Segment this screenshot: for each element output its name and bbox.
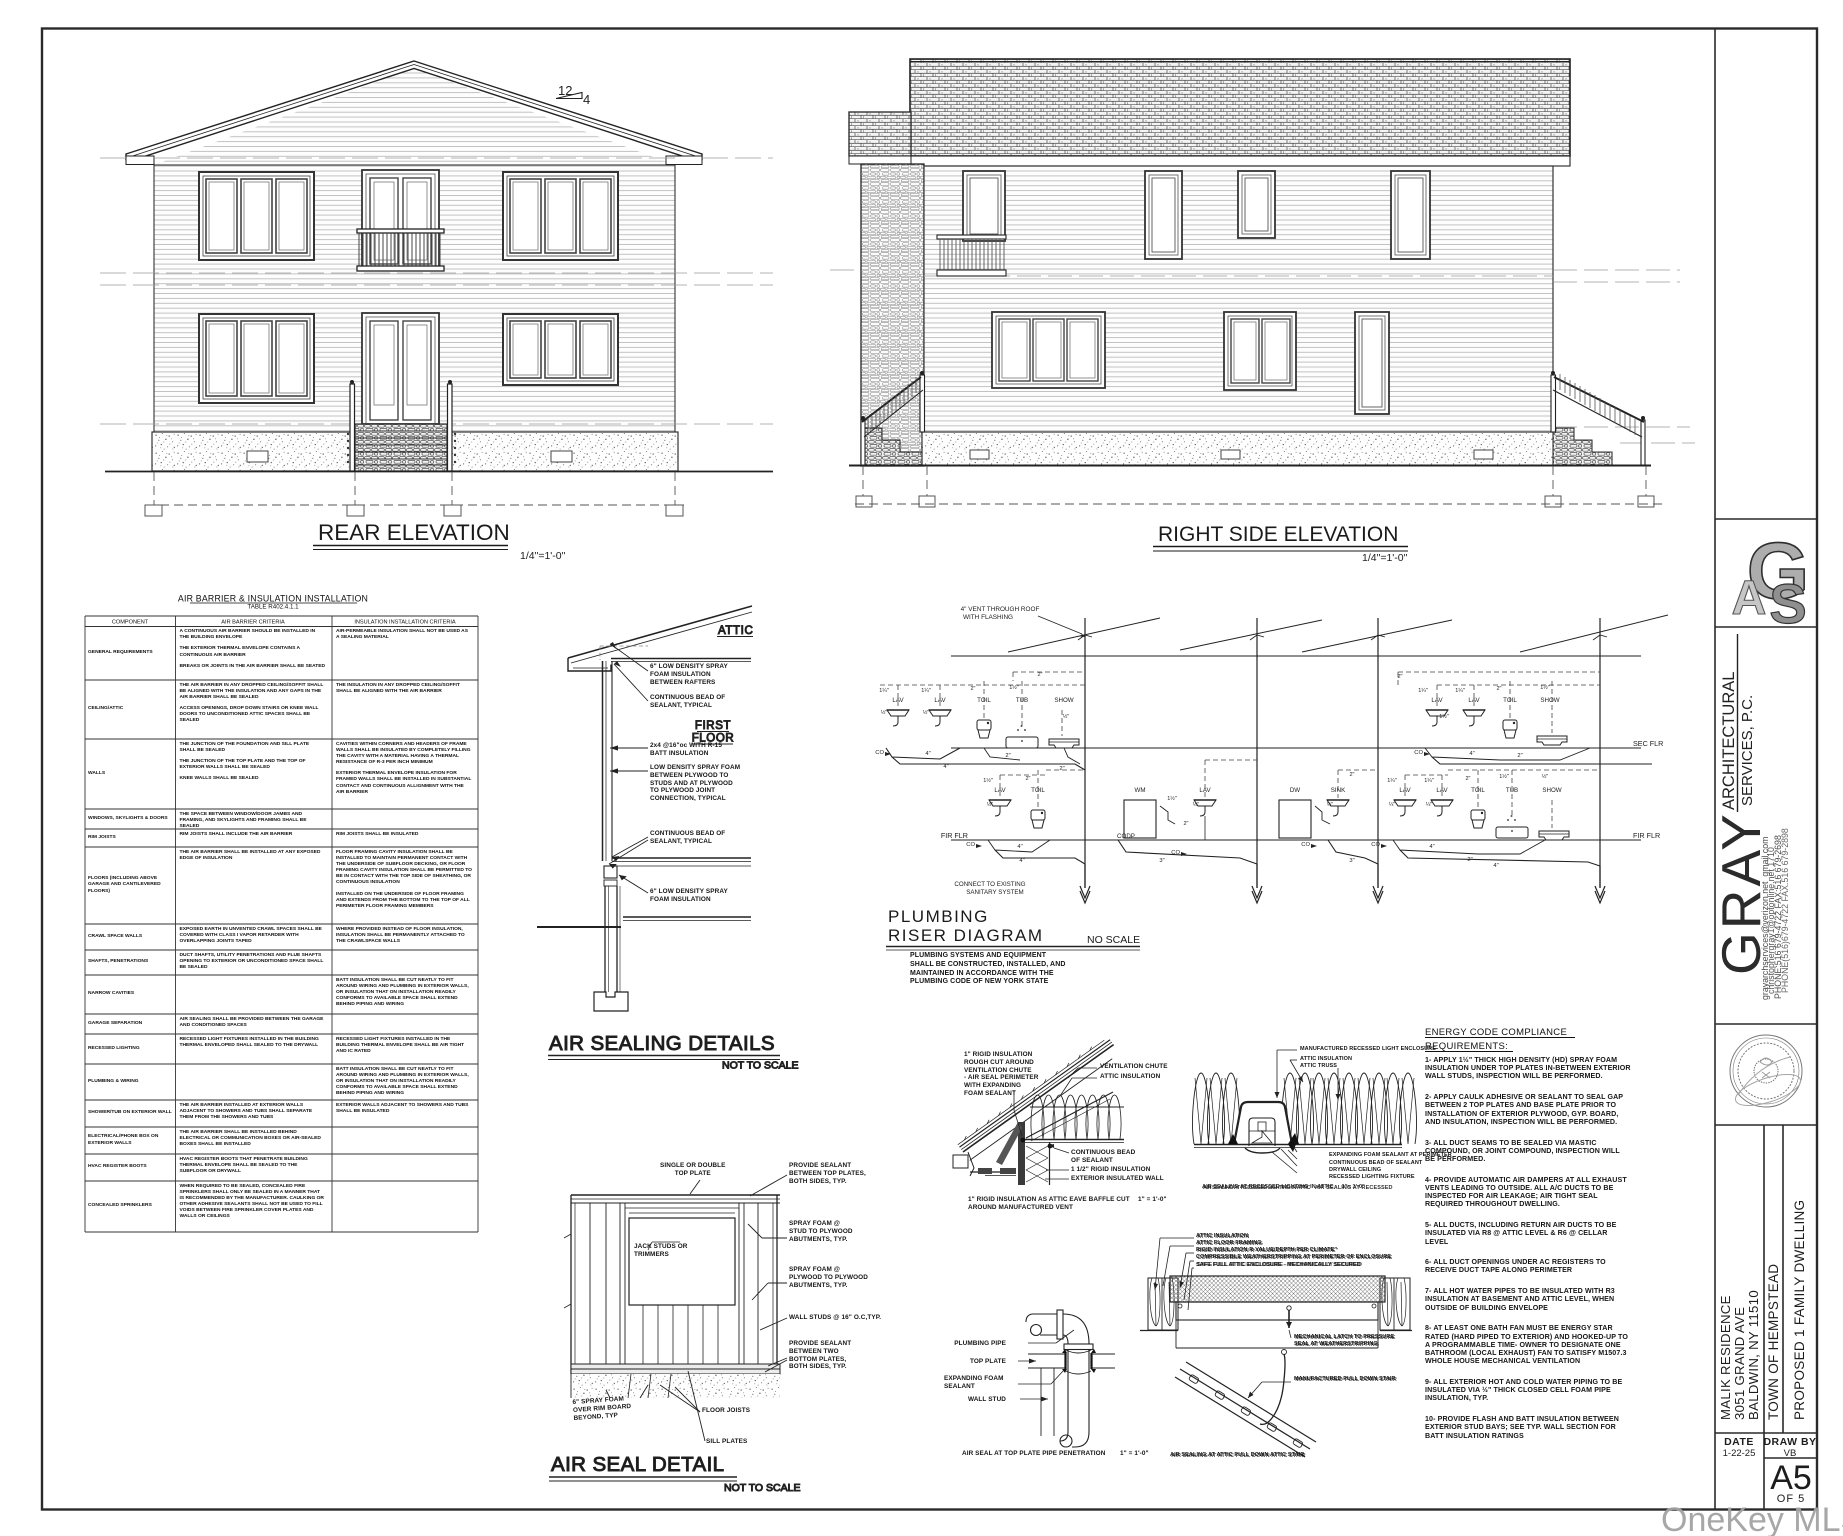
svg-text:4: 4 bbox=[583, 92, 590, 107]
svg-text:TABLE R402.4.1.1: TABLE R402.4.1.1 bbox=[247, 604, 299, 611]
svg-text:4": 4" bbox=[1429, 844, 1434, 850]
svg-text:REQUIREMENTS:: REQUIREMENTS: bbox=[1425, 1041, 1508, 1052]
svg-text:DW: DW bbox=[1290, 787, 1300, 794]
svg-text:LAV: LAV bbox=[1431, 697, 1443, 704]
svg-text:4": 4" bbox=[925, 751, 930, 757]
svg-text:1¼": 1¼" bbox=[1387, 778, 1397, 784]
svg-text:CO: CO bbox=[1414, 750, 1423, 756]
svg-text:LAV: LAV bbox=[1436, 787, 1448, 794]
svg-text:PROPOSED 1 FAMILY DWELLING: PROPOSED 1 FAMILY DWELLING bbox=[1792, 1200, 1807, 1420]
svg-text:LAV: LAV bbox=[1468, 697, 1480, 704]
svg-text:SHOW: SHOW bbox=[1542, 787, 1561, 794]
svg-text:CO: CO bbox=[966, 842, 975, 848]
svg-text:2": 2" bbox=[1025, 776, 1030, 782]
svg-text:DRAW BY: DRAW BY bbox=[1763, 1436, 1816, 1448]
svg-text:FIR FLR: FIR FLR bbox=[941, 831, 968, 840]
svg-text:FIRST: FIRST bbox=[695, 720, 731, 732]
svg-text:1¼": 1¼" bbox=[1455, 688, 1465, 694]
svg-text:2": 2" bbox=[1183, 821, 1188, 827]
svg-text:AIR SEAL DETAIL: AIR SEAL DETAIL bbox=[551, 1453, 724, 1476]
svg-text:½": ½" bbox=[1327, 801, 1334, 808]
svg-text:3": 3" bbox=[1159, 858, 1164, 864]
svg-text:1/4"=1'-0": 1/4"=1'-0" bbox=[1362, 552, 1408, 564]
svg-text:1¼": 1¼" bbox=[1424, 778, 1434, 784]
svg-text:ENERGY CODE COMPLIANCE: ENERGY CODE COMPLIANCE bbox=[1425, 1027, 1567, 1038]
svg-text:4": 4" bbox=[1493, 863, 1498, 869]
svg-text:ARCHITECTURAL: ARCHITECTURAL bbox=[1720, 672, 1738, 810]
svg-text:BALDWIN, NY 11510: BALDWIN, NY 11510 bbox=[1746, 1290, 1761, 1420]
svg-text:4": 4" bbox=[943, 764, 948, 770]
svg-text:LAV: LAV bbox=[1399, 787, 1411, 794]
svg-text:2": 2" bbox=[1005, 753, 1010, 759]
svg-text:DATE: DATE bbox=[1724, 1436, 1754, 1448]
svg-text:CONNECT TO EXISTING: CONNECT TO EXISTING bbox=[954, 881, 1025, 888]
svg-text:4": 4" bbox=[1469, 751, 1474, 757]
svg-text:REAR ELEVATION: REAR ELEVATION bbox=[318, 520, 510, 545]
svg-text:WITH FLASHING: WITH FLASHING bbox=[963, 614, 1013, 621]
svg-text:AIR BARRIER & INSULATION INSTA: AIR BARRIER & INSULATION INSTALLATION bbox=[178, 594, 368, 604]
svg-text:LAV: LAV bbox=[994, 787, 1006, 794]
svg-text:LAV: LAV bbox=[892, 697, 904, 704]
svg-text:SEC FLR: SEC FLR bbox=[1633, 739, 1663, 748]
svg-text:1½": 1½" bbox=[1167, 795, 1177, 802]
svg-text:ATTIC: ATTIC bbox=[718, 625, 753, 637]
svg-text:VB: VB bbox=[1784, 1448, 1797, 1459]
svg-text:4": 4" bbox=[1019, 858, 1024, 864]
svg-text:A: A bbox=[1732, 572, 1767, 625]
svg-text:A5: A5 bbox=[1770, 1459, 1812, 1497]
svg-text:PHONE(516)679-4722 FAX.516 679: PHONE(516)679-4722 FAX.516 679-2898 bbox=[1780, 828, 1790, 993]
svg-text:NOT TO SCALE: NOT TO SCALE bbox=[722, 1060, 798, 1072]
svg-text:2": 2" bbox=[1517, 753, 1522, 759]
svg-text:2": 2" bbox=[1349, 772, 1354, 778]
svg-text:1½": 1½" bbox=[1540, 684, 1550, 691]
svg-text:CODP: CODP bbox=[1117, 833, 1135, 840]
svg-text:½": ½" bbox=[923, 709, 930, 716]
svg-text:MALIK RESIDENCE: MALIK RESIDENCE bbox=[1718, 1295, 1733, 1420]
svg-text:½": ½" bbox=[987, 801, 994, 808]
svg-text:NO SCALE: NO SCALE bbox=[1087, 934, 1140, 946]
svg-text:CO: CO bbox=[1171, 850, 1180, 856]
svg-text:1¼": 1¼" bbox=[1418, 688, 1428, 694]
svg-text:1¼": 1¼" bbox=[921, 688, 931, 694]
svg-text:INSULATION INSTALLATION CRITER: INSULATION INSTALLATION CRITERIA bbox=[354, 620, 456, 626]
svg-text:COMPONENT: COMPONENT bbox=[112, 620, 149, 626]
svg-text:RIGHT SIDE ELEVATION: RIGHT SIDE ELEVATION bbox=[1158, 523, 1398, 546]
svg-text:2": 2" bbox=[1397, 674, 1402, 680]
svg-text:½": ½" bbox=[881, 709, 888, 716]
svg-text:½": ½" bbox=[1542, 773, 1549, 780]
svg-text:2": 2" bbox=[1496, 686, 1501, 692]
svg-text:AIR SEALING DETAILS: AIR SEALING DETAILS bbox=[549, 1032, 775, 1055]
svg-text:1½": 1½" bbox=[1439, 713, 1449, 720]
svg-text:1½": 1½" bbox=[983, 777, 993, 784]
svg-text:1½": 1½" bbox=[1499, 773, 1509, 780]
svg-text:2": 2" bbox=[970, 686, 975, 692]
svg-text:CO: CO bbox=[1301, 842, 1310, 848]
svg-text:SINK: SINK bbox=[1331, 787, 1346, 794]
svg-text:S: S bbox=[1769, 572, 1806, 635]
svg-text:FIR FLR: FIR FLR bbox=[1633, 831, 1660, 840]
svg-text:1-22-25: 1-22-25 bbox=[1723, 1448, 1756, 1459]
svg-text:3051 GRAND AVE: 3051 GRAND AVE bbox=[1732, 1307, 1747, 1420]
svg-text:4" VENT THROUGH ROOF: 4" VENT THROUGH ROOF bbox=[961, 606, 1040, 613]
svg-text:TOWN OF HEMPSTEAD: TOWN OF HEMPSTEAD bbox=[1766, 1264, 1781, 1420]
svg-text:CO: CO bbox=[1371, 842, 1380, 848]
svg-text:2": 2" bbox=[1467, 857, 1472, 863]
svg-text:SHOW: SHOW bbox=[1540, 697, 1559, 704]
svg-text:¼": ¼" bbox=[1426, 802, 1433, 808]
svg-text:SERVICES, P.C.: SERVICES, P.C. bbox=[1739, 695, 1756, 806]
svg-text:NOT TO SCALE: NOT TO SCALE bbox=[724, 1482, 800, 1494]
svg-text:3": 3" bbox=[1349, 858, 1354, 864]
svg-text:PLUMBING: PLUMBING bbox=[888, 907, 989, 926]
svg-text:2": 2" bbox=[1059, 766, 1064, 772]
svg-text:CO: CO bbox=[875, 750, 884, 756]
svg-text:RISER DIAGRAM: RISER DIAGRAM bbox=[888, 926, 1044, 945]
svg-text:1/4"=1'-0": 1/4"=1'-0" bbox=[520, 550, 566, 562]
svg-text:SANITARY SYSTEM: SANITARY SYSTEM bbox=[966, 889, 1023, 896]
svg-text:2": 2" bbox=[1465, 776, 1470, 782]
svg-text:OneKey MLS: OneKey MLS bbox=[1661, 1501, 1843, 1536]
svg-text:2": 2" bbox=[1037, 672, 1042, 678]
svg-text:1¼": 1¼" bbox=[879, 688, 889, 694]
svg-text:AIR BARRIER CRITERIA: AIR BARRIER CRITERIA bbox=[221, 620, 285, 626]
svg-text:1½": 1½" bbox=[1009, 684, 1019, 691]
svg-text:4": 4" bbox=[1017, 844, 1022, 850]
svg-text:LAV: LAV bbox=[934, 697, 946, 704]
svg-text:¼": ¼" bbox=[1389, 802, 1396, 808]
svg-text:½": ½" bbox=[1063, 713, 1070, 720]
svg-text:SHOW: SHOW bbox=[1054, 697, 1073, 704]
svg-text:½": ½" bbox=[1193, 801, 1200, 808]
svg-text:WM: WM bbox=[1135, 787, 1146, 794]
svg-text:LAV: LAV bbox=[1199, 787, 1211, 794]
